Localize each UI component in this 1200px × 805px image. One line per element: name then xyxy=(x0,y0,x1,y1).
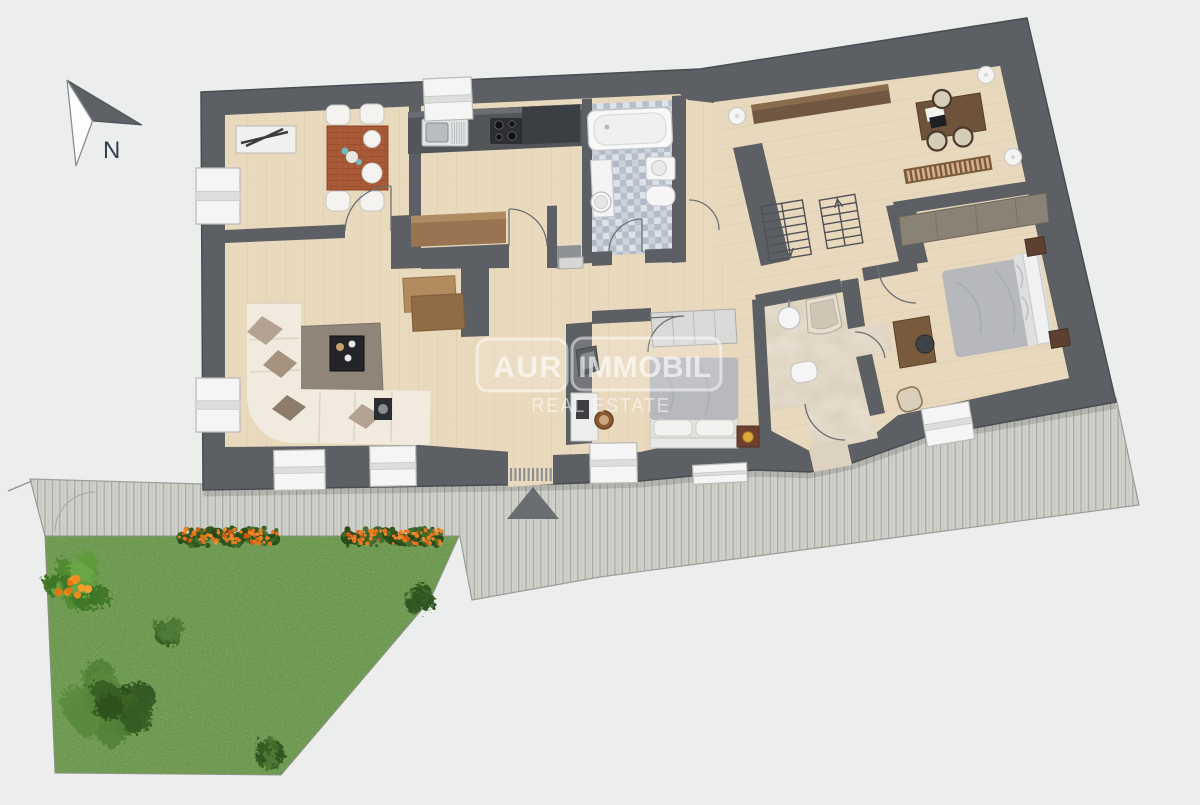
svg-text:REAL ESTATE: REAL ESTATE xyxy=(531,395,670,417)
svg-text:N: N xyxy=(103,137,120,164)
svg-text:IMMOBIL: IMMOBIL xyxy=(578,351,711,384)
svg-text:AUR: AUR xyxy=(493,351,563,384)
